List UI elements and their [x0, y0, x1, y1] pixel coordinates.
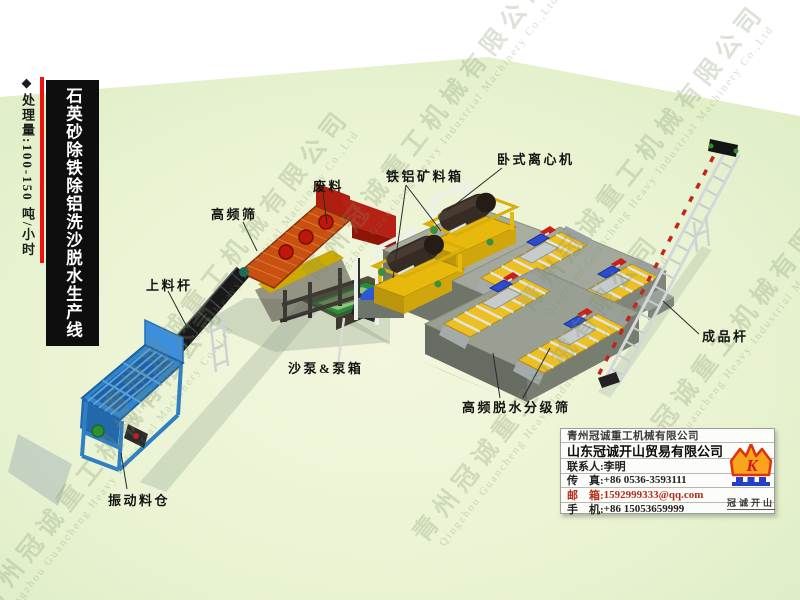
label-vib-hopper: 振动料仓 — [108, 490, 170, 509]
crown-logo-icon: K — [729, 444, 773, 488]
label-ore-box: 铁铝矿料箱 — [386, 166, 464, 185]
company-logo: K 冠诚开山 — [727, 444, 775, 512]
person-value: 李明 — [604, 459, 626, 474]
label-product-conveyor: 成品杆 — [702, 326, 749, 345]
email-label: 邮 箱: — [567, 488, 604, 503]
mobile-value: +86 15053659999 — [604, 503, 685, 515]
production-line-poster: 青州冠诚重工机械有限公司Qingzhou Guancheng Heavy Ind… — [0, 0, 800, 600]
mobile-label: 手 机: — [567, 503, 604, 517]
label-feed-conveyor: 上料杆 — [146, 275, 193, 294]
contact-card: 青州冠诚重工机械有限公司 山东冠诚开山贸易有限公司 联系人:李明 传 真:+86… — [560, 428, 775, 514]
ground-plane — [0, 57, 800, 600]
page-title: 石英砂除铁除铝洗沙脱水生产线 — [61, 87, 85, 339]
email-value: 1592999333@qq.com — [604, 489, 704, 501]
svg-text:K: K — [745, 456, 759, 475]
label-dewater-screen: 高频脱水分级筛 — [462, 397, 571, 416]
label-waste: 废料 — [313, 176, 344, 195]
company-name-1: 青州冠诚重工机械有限公司 — [561, 429, 774, 443]
capacity-note: ◆处理量:100-150 吨/小时 — [18, 76, 37, 266]
label-centrifuge: 卧式离心机 — [497, 149, 575, 168]
banner-red-line — [40, 77, 44, 263]
person-label: 联系人: — [567, 459, 604, 474]
fax-value: +86 0536-3593111 — [604, 474, 687, 486]
label-hf-screen: 高频筛 — [211, 204, 258, 223]
logo-text: 冠诚开山 — [727, 496, 775, 510]
title-banner: 石英砂除铁除铝洗沙脱水生产线 — [46, 80, 99, 346]
label-sand-pump: 沙泵&泵箱 — [288, 358, 363, 377]
fax-label: 传 真: — [567, 474, 604, 489]
